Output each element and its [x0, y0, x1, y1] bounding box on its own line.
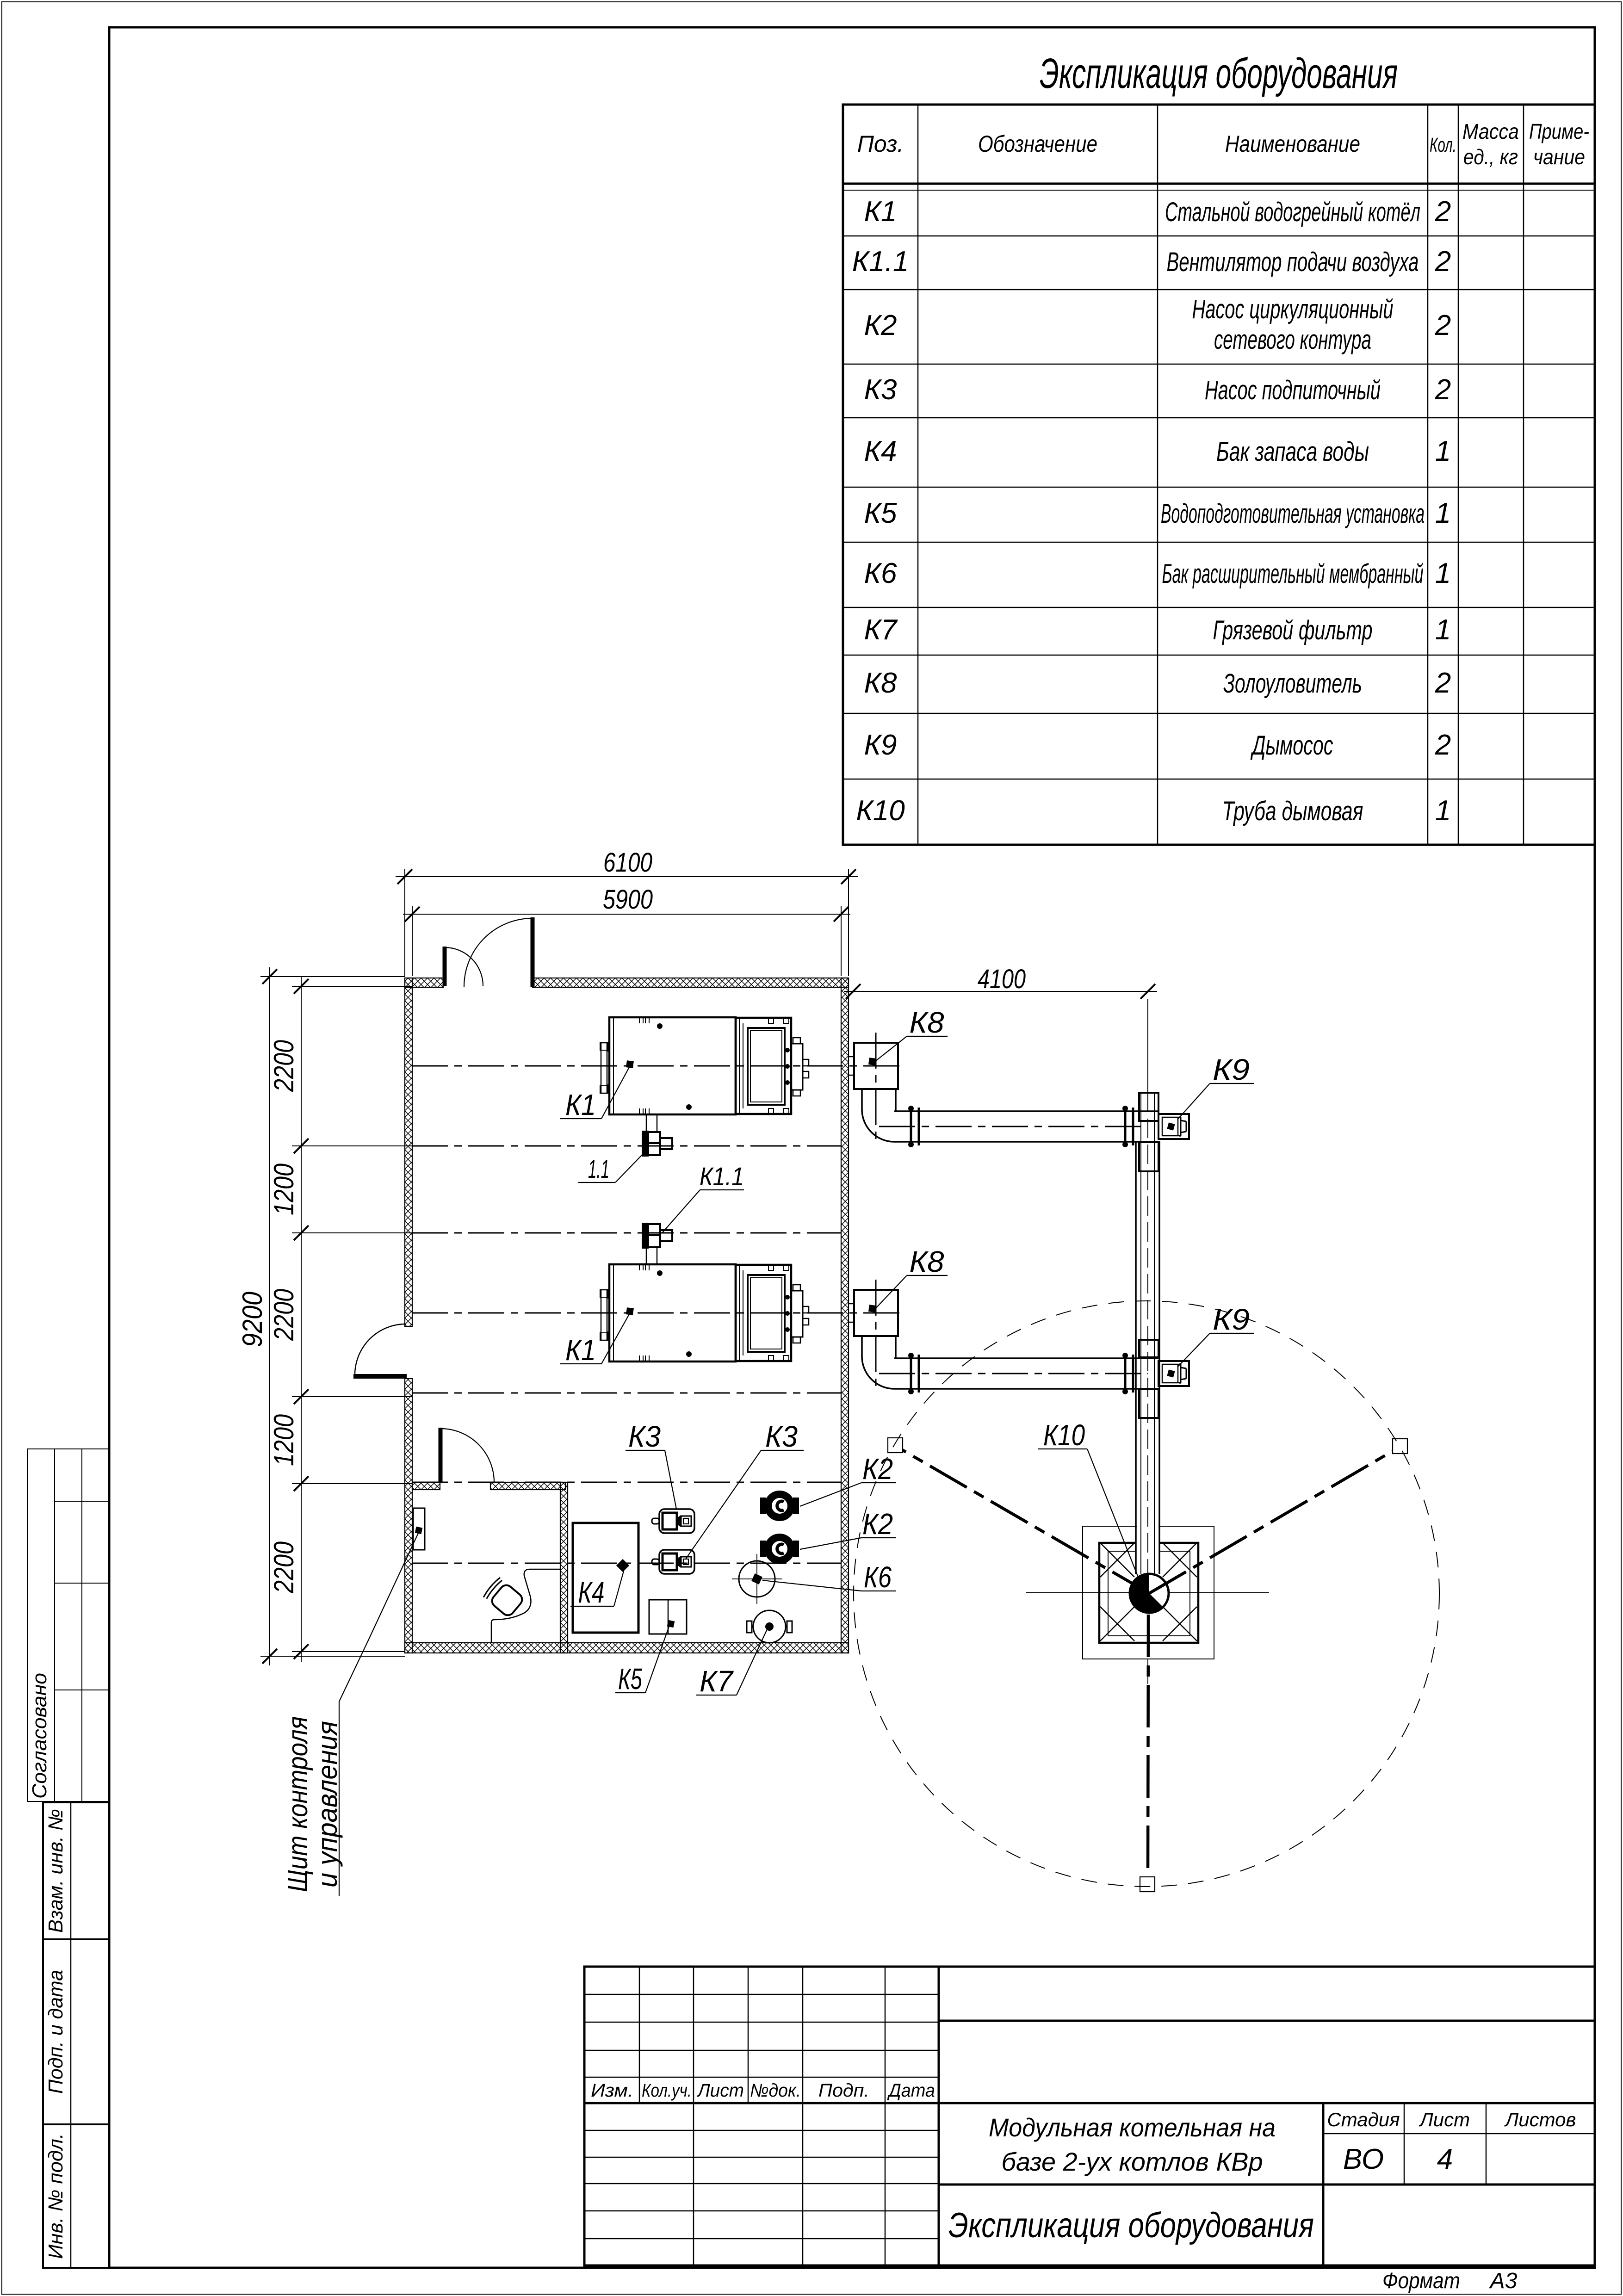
svg-text:Подп. и дата: Подп. и дата [44, 1970, 67, 2094]
svg-text:ВО: ВО [1343, 2143, 1384, 2175]
svg-text:базе 2-ух котлов КВр: базе 2-ух котлов КВр [1002, 2147, 1263, 2176]
svg-text:Кол.уч.: Кол.уч. [642, 2080, 692, 2101]
svg-text:К10: К10 [1043, 1418, 1085, 1452]
svg-text:9200: 9200 [237, 1292, 268, 1347]
svg-text:Вентилятор подачи воздуха: Вентилятор подачи воздуха [1167, 247, 1419, 277]
svg-text:4100: 4100 [978, 964, 1026, 994]
svg-text:чание: чание [1533, 145, 1585, 169]
svg-text:Золоуловитель: Золоуловитель [1223, 668, 1362, 699]
svg-text:К1.1: К1.1 [700, 1162, 744, 1191]
svg-text:Насос подпиточный: Насос подпиточный [1205, 375, 1381, 405]
svg-text:1.1: 1.1 [588, 1154, 609, 1183]
svg-text:Изм.: Изм. [591, 2080, 633, 2101]
svg-text:1200: 1200 [268, 1414, 299, 1466]
svg-text:Экспликация оборудования: Экспликация оборудования [1040, 50, 1398, 97]
svg-text:К7: К7 [864, 614, 898, 646]
svg-text:Труба дымовая: Труба дымовая [1222, 796, 1363, 826]
svg-text:Приме-: Приме- [1529, 119, 1589, 143]
svg-text:К6: К6 [864, 1560, 892, 1594]
svg-text:К8: К8 [910, 1006, 944, 1039]
svg-text:сетевого контура: сетевого контура [1214, 325, 1371, 355]
svg-text:К4: К4 [578, 1576, 605, 1609]
svg-text:Стадия: Стадия [1327, 2109, 1400, 2130]
svg-text:Листов: Листов [1504, 2109, 1576, 2130]
svg-text:Взам. инв. №: Взам. инв. № [44, 1809, 67, 1933]
svg-text:№док.: №док. [750, 2080, 801, 2101]
svg-text:К5: К5 [864, 497, 897, 529]
svg-text:1: 1 [1435, 435, 1451, 467]
svg-text:2: 2 [1435, 374, 1451, 406]
svg-text:1: 1 [1435, 497, 1451, 529]
svg-text:Насос циркуляционный: Насос циркуляционный [1192, 294, 1394, 324]
svg-text:4: 4 [1437, 2143, 1453, 2175]
svg-text:5900: 5900 [603, 885, 653, 915]
svg-text:и управления: и управления [312, 1721, 343, 1888]
svg-text:К5: К5 [618, 1662, 642, 1696]
svg-text:Лист: Лист [1419, 2109, 1470, 2130]
svg-text:К9: К9 [1213, 1303, 1250, 1336]
svg-text:Экспликация оборудования: Экспликация оборудования [948, 2206, 1314, 2245]
svg-text:К10: К10 [856, 795, 905, 827]
svg-text:К1: К1 [565, 1333, 596, 1367]
svg-text:2200: 2200 [268, 1541, 299, 1594]
svg-text:Дымосос: Дымосос [1250, 730, 1333, 761]
svg-text:6100: 6100 [603, 848, 652, 878]
svg-text:Дата: Дата [887, 2080, 935, 2101]
svg-text:К4: К4 [864, 435, 897, 467]
svg-text:Бак запаса воды: Бак запаса воды [1216, 437, 1369, 467]
svg-text:2: 2 [1435, 196, 1451, 228]
svg-text:К8: К8 [910, 1245, 944, 1278]
svg-text:Щит контроля: Щит контроля [282, 1716, 313, 1892]
svg-text:Наименование: Наименование [1225, 131, 1360, 157]
svg-text:2200: 2200 [268, 1289, 299, 1341]
svg-text:Поз.: Поз. [857, 131, 904, 157]
svg-text:Бак расширительный мембранный: Бак расширительный мембранный [1162, 559, 1424, 589]
svg-text:Согласовано: Согласовано [28, 1673, 51, 1799]
svg-text:К1: К1 [565, 1088, 596, 1121]
svg-text:К8: К8 [864, 667, 897, 699]
svg-text:Подп.: Подп. [818, 2080, 869, 2101]
svg-text:Кол.: Кол. [1430, 134, 1456, 156]
svg-text:К2: К2 [862, 1507, 893, 1541]
svg-text:А3: А3 [1489, 2269, 1518, 2293]
svg-text:К9: К9 [1213, 1053, 1250, 1086]
svg-text:Формат: Формат [1382, 2269, 1460, 2293]
svg-text:Лист: Лист [696, 2080, 744, 2101]
svg-text:2: 2 [1435, 667, 1451, 699]
svg-text:К2: К2 [864, 309, 897, 341]
svg-text:Инв. № подл.: Инв. № подл. [44, 2133, 67, 2259]
svg-text:К3: К3 [628, 1420, 661, 1453]
svg-text:К2: К2 [862, 1452, 893, 1485]
svg-text:1: 1 [1435, 795, 1451, 827]
svg-text:1200: 1200 [268, 1163, 299, 1215]
svg-text:К3: К3 [765, 1420, 798, 1453]
svg-text:Стальной водогрейный котёл: Стальной водогрейный котёл [1165, 197, 1420, 227]
svg-text:К7: К7 [700, 1665, 734, 1698]
svg-text:К6: К6 [864, 557, 897, 589]
svg-text:К1.1: К1.1 [852, 246, 909, 278]
svg-text:2: 2 [1435, 246, 1451, 278]
svg-text:ед., кг: ед., кг [1463, 145, 1518, 169]
svg-text:1: 1 [1435, 557, 1451, 589]
svg-text:2200: 2200 [268, 1040, 299, 1092]
svg-text:2: 2 [1435, 729, 1451, 761]
svg-text:1: 1 [1435, 614, 1451, 646]
svg-text:Масса: Масса [1462, 119, 1519, 143]
svg-text:Модульная котельная на: Модульная котельная на [989, 2113, 1276, 2142]
svg-text:К9: К9 [864, 729, 897, 761]
svg-text:Обозначение: Обозначение [978, 131, 1097, 157]
svg-text:К1: К1 [864, 196, 897, 228]
svg-text:К3: К3 [864, 374, 897, 406]
svg-text:2: 2 [1435, 309, 1451, 341]
svg-text:Водоподготовительная установка: Водоподготовительная установка [1161, 499, 1425, 529]
svg-text:Грязевой фильтр: Грязевой фильтр [1213, 615, 1373, 645]
